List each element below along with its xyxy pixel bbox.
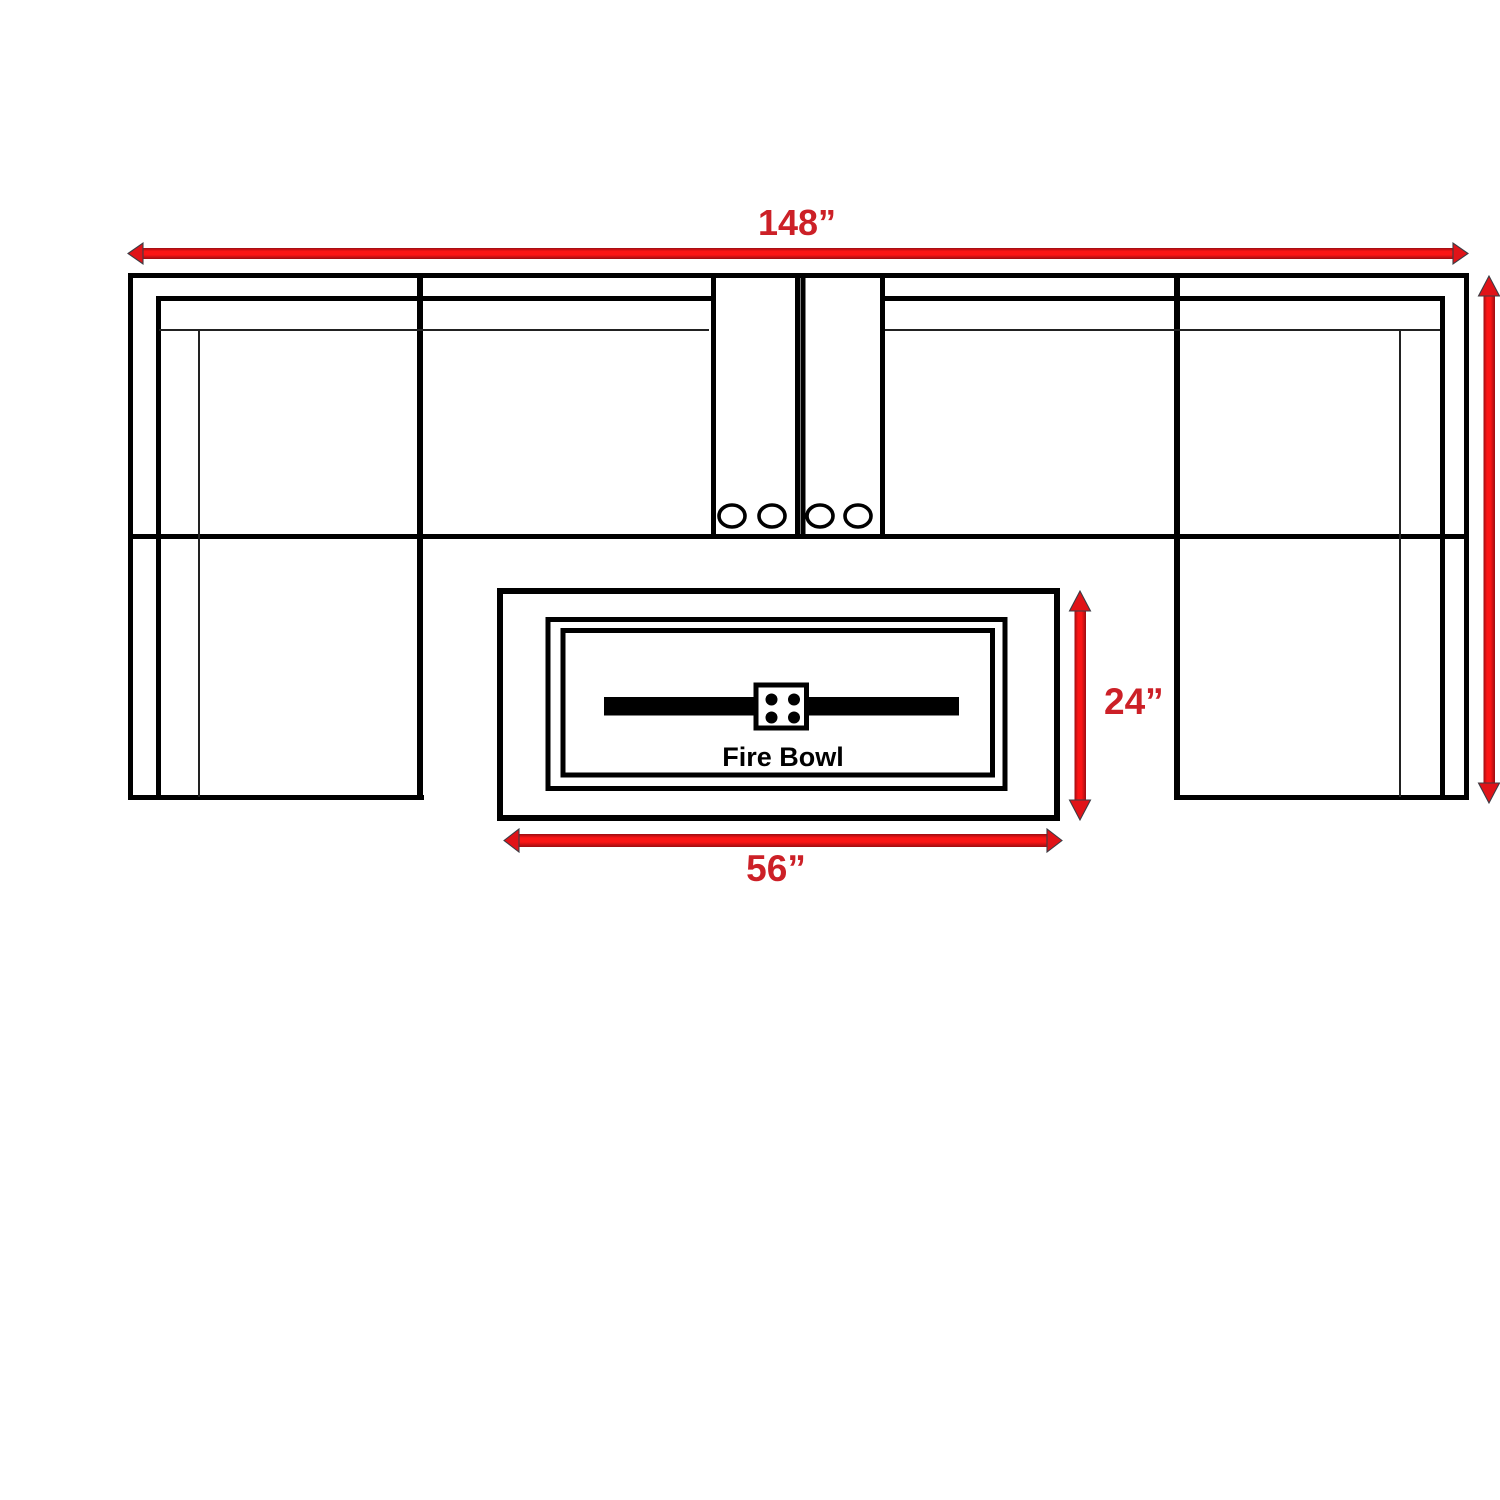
svg-text:56”: 56” bbox=[746, 848, 806, 889]
svg-text:24”: 24” bbox=[1104, 681, 1164, 722]
svg-text:Fire Bowl: Fire Bowl bbox=[722, 742, 844, 772]
svg-text:148”: 148” bbox=[758, 202, 836, 243]
